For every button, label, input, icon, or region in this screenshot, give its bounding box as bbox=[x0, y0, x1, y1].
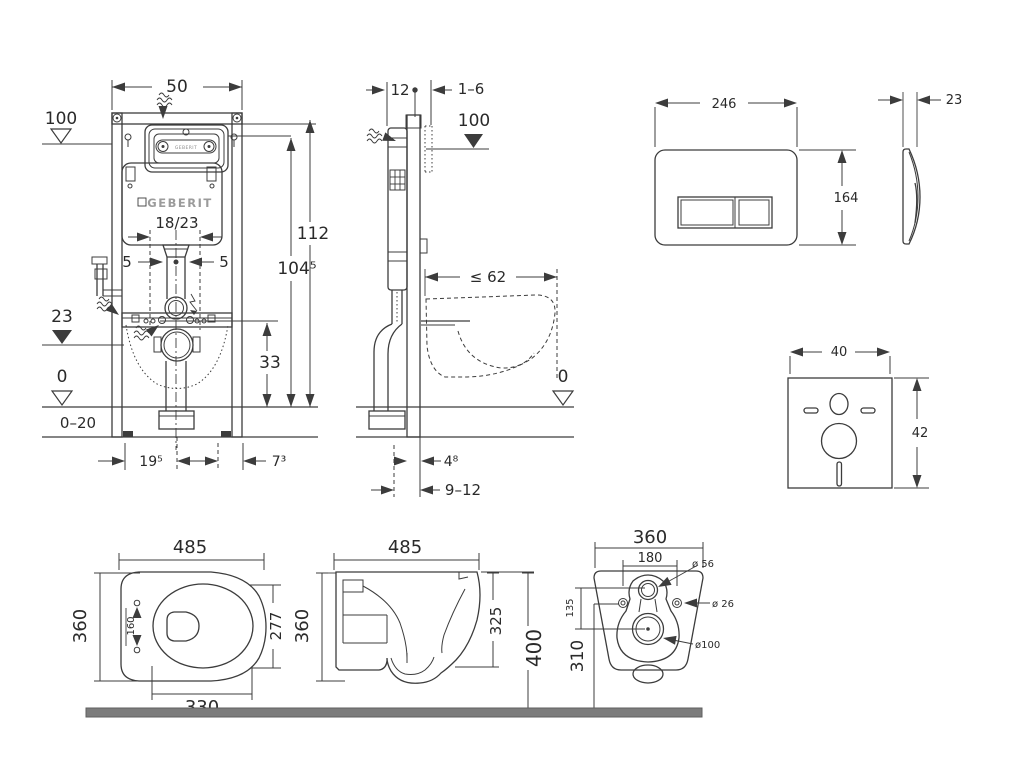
dim-bottom-left: 19⁵ bbox=[139, 454, 162, 470]
dim-bottom-right: 7³ bbox=[272, 454, 287, 470]
dim-wcside-length: 485 bbox=[334, 537, 479, 570]
svg-text:360: 360 bbox=[70, 609, 91, 643]
frame-side-view: ≤ 62 100 0 12 1–6 4⁸ 9–12 bbox=[356, 80, 574, 499]
dim-wcside-height: 360 bbox=[292, 573, 345, 681]
svg-text:164: 164 bbox=[834, 191, 859, 206]
dim-front-48: 4⁸ bbox=[444, 454, 459, 470]
dim-bottom-row: 19⁵ 7³ bbox=[98, 437, 286, 470]
svg-text:33: 33 bbox=[259, 353, 281, 373]
svg-text:180: 180 bbox=[638, 551, 663, 566]
wc-pan-outline-dashed bbox=[426, 295, 555, 377]
fixing-hole-right bbox=[673, 599, 682, 608]
dim-pad-width: 40 bbox=[790, 345, 890, 374]
svg-text:400: 400 bbox=[522, 629, 546, 667]
svg-text:485: 485 bbox=[173, 537, 207, 558]
svg-text:ø100: ø100 bbox=[695, 640, 720, 651]
svg-text:ø 26: ø 26 bbox=[712, 599, 734, 610]
svg-text:104⁵: 104⁵ bbox=[277, 259, 316, 279]
dim-offset-left: 5 bbox=[122, 253, 132, 271]
wc-pan-outline-dotted bbox=[126, 325, 228, 389]
drain-elbow bbox=[374, 324, 392, 411]
geberit-logo: GEBERIT bbox=[147, 196, 212, 210]
wc-top-view: 160 485 360 277 330 bbox=[70, 537, 285, 718]
dim-plate-height: 164 bbox=[799, 150, 858, 245]
dim-max-depth: ≤ 62 bbox=[425, 268, 557, 378]
callout-flush-dia: ø 56 bbox=[656, 559, 714, 591]
dim-seat-depth: 277 bbox=[250, 585, 285, 668]
sound-insulation-pad-view: 40 42 bbox=[788, 345, 929, 488]
geberit-square-icon bbox=[138, 198, 146, 206]
svg-text:42: 42 bbox=[912, 426, 929, 441]
service-window: GEBERIT bbox=[145, 125, 228, 172]
window-logo: GEBERIT bbox=[175, 145, 197, 151]
flush-opening bbox=[167, 612, 199, 641]
wc-rear-view: 360 180 ø 56 ø 26 ø100 135 310 bbox=[565, 527, 734, 710]
dim-side-bottom: 4⁸ 9–12 bbox=[371, 437, 481, 499]
svg-text:112: 112 bbox=[297, 224, 329, 244]
dim-drain-height: 33 bbox=[160, 321, 281, 407]
svg-text:325: 325 bbox=[487, 607, 505, 636]
dim-fixing-height: 310 bbox=[568, 604, 619, 710]
svg-text:360: 360 bbox=[633, 527, 667, 548]
dim-plate-width: 246 bbox=[655, 97, 797, 147]
floor-range: 0–20 bbox=[60, 414, 96, 432]
level-0-side: 0 bbox=[558, 367, 569, 387]
dim-offset-right: 5 bbox=[219, 253, 229, 271]
flush-plate-side-view: 23 bbox=[878, 92, 962, 244]
level-100-front: 100 bbox=[45, 109, 77, 129]
dim-pad-height: 42 bbox=[894, 378, 929, 488]
water-inlet-icon bbox=[367, 129, 382, 143]
water-inlet-icon bbox=[134, 326, 149, 340]
fixing-hole-left bbox=[619, 599, 628, 608]
dim-wctop-length: 485 bbox=[119, 537, 264, 570]
dim-floor-912: 9–12 bbox=[445, 481, 481, 499]
svg-text:485: 485 bbox=[388, 537, 422, 558]
dim-depth-12: 12 bbox=[390, 81, 409, 99]
cistern-profile bbox=[388, 128, 407, 290]
level-0-front: 0 bbox=[57, 367, 68, 387]
flush-plate-front-view: 246 164 bbox=[655, 97, 858, 245]
level-mark-icon bbox=[464, 134, 483, 148]
svg-text:160: 160 bbox=[126, 616, 137, 635]
svg-text:ø 56: ø 56 bbox=[692, 559, 714, 570]
level-mark-icon bbox=[52, 391, 72, 405]
svg-text:40: 40 bbox=[831, 345, 848, 360]
level-100-side: 100 bbox=[458, 111, 490, 131]
wc-side-view: 485 360 325 400 bbox=[292, 537, 546, 711]
dim-wall-gap: 1–6 bbox=[458, 80, 485, 98]
drawing-svg: GEBERIT GEBERIT 18/23 5 5 bbox=[0, 0, 1024, 758]
dim-frame-width: 50 bbox=[112, 77, 242, 110]
level-mark-icon bbox=[52, 330, 72, 344]
svg-text:50: 50 bbox=[166, 77, 188, 97]
dim-offsets: 5 5 bbox=[122, 253, 229, 271]
callout-fixing-dia: ø 26 bbox=[684, 599, 734, 611]
seat-ring bbox=[153, 584, 253, 668]
level-mark-icon bbox=[51, 129, 71, 143]
level-mark-icon bbox=[553, 391, 573, 405]
dim-total-height: 400 bbox=[481, 572, 546, 711]
svg-text:277: 277 bbox=[267, 612, 285, 641]
frame-front-view: GEBERIT GEBERIT 18/23 5 5 bbox=[42, 77, 329, 470]
cistern-model: 18/23 bbox=[155, 214, 198, 232]
svg-text:246: 246 bbox=[712, 97, 737, 112]
dim-hinge-spacing: 160 bbox=[126, 607, 142, 646]
svg-text:≤ 62: ≤ 62 bbox=[470, 268, 506, 286]
floor-bar bbox=[86, 708, 702, 717]
svg-text:310: 310 bbox=[568, 640, 588, 672]
inlet-cutout bbox=[830, 394, 848, 415]
drain-cutout bbox=[822, 424, 857, 459]
dim-plate-depth: 23 bbox=[946, 93, 963, 108]
flush-button-large bbox=[681, 200, 733, 225]
flush-button-small bbox=[739, 200, 769, 225]
dim-fixing-height: 104⁵ bbox=[277, 138, 316, 407]
drain-socket bbox=[154, 329, 200, 429]
svg-text:360: 360 bbox=[292, 609, 313, 643]
technical-drawing-sheet: GEBERIT GEBERIT 18/23 5 5 bbox=[0, 0, 1024, 758]
svg-text:135: 135 bbox=[565, 598, 576, 617]
dim-flush-drain-offset: 135 bbox=[565, 588, 645, 629]
level-23: 23 bbox=[51, 307, 73, 327]
